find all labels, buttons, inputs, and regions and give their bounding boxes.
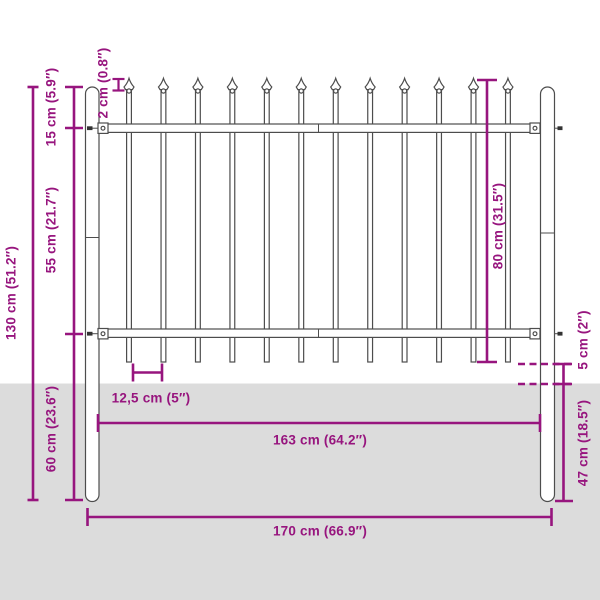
dim-ground-clearance xyxy=(555,364,572,384)
bolt-head xyxy=(87,126,93,130)
picket xyxy=(296,78,306,362)
top-rail xyxy=(99,124,540,132)
label-panel-height: 80 cm (31.5″) xyxy=(491,183,505,269)
left-post xyxy=(86,87,100,502)
picket xyxy=(227,78,237,362)
right-post xyxy=(541,87,555,502)
picket xyxy=(331,78,341,362)
diagram-canvas xyxy=(0,0,600,600)
picket xyxy=(158,78,168,362)
bracket-bottom-left xyxy=(98,329,108,339)
bracket-top-left xyxy=(98,123,108,133)
label-rail-gap: 55 cm (21.7″) xyxy=(44,187,58,273)
label-spear-head: 2 cm (0.8″) xyxy=(96,48,110,119)
fence-dimension-diagram: 130 cm (51.2″) 15 cm (5.9″) 2 cm (0.8″) … xyxy=(0,0,600,600)
bottom-rail xyxy=(99,329,540,337)
bracket-bottom-right xyxy=(530,329,540,339)
picket xyxy=(262,78,272,362)
dim-picket-spacing xyxy=(133,364,162,382)
bolt-head xyxy=(87,332,93,336)
label-ground-gap: 5 cm (2″) xyxy=(576,310,590,369)
label-total-width: 170 cm (66.9″) xyxy=(273,524,367,538)
label-top-offset: 15 cm (5.9″) xyxy=(44,68,58,147)
bolt-head xyxy=(558,126,563,130)
label-picket-spacing: 12,5 cm (5″) xyxy=(112,391,191,405)
picket xyxy=(469,78,479,362)
bracket-top-right xyxy=(530,123,540,133)
pickets xyxy=(124,78,513,362)
label-panel-width: 163 cm (64.2″) xyxy=(273,433,367,447)
picket xyxy=(365,78,375,362)
label-total-height: 130 cm (51.2″) xyxy=(4,246,18,340)
bolt-head xyxy=(558,332,563,336)
label-below-rail: 60 cm (23.6″) xyxy=(44,386,58,472)
picket xyxy=(434,78,444,362)
picket xyxy=(400,78,410,362)
picket xyxy=(193,78,203,362)
label-underground: 47 cm (18.5″) xyxy=(576,400,590,486)
dim-spear-head xyxy=(113,79,125,91)
picket xyxy=(124,78,134,362)
